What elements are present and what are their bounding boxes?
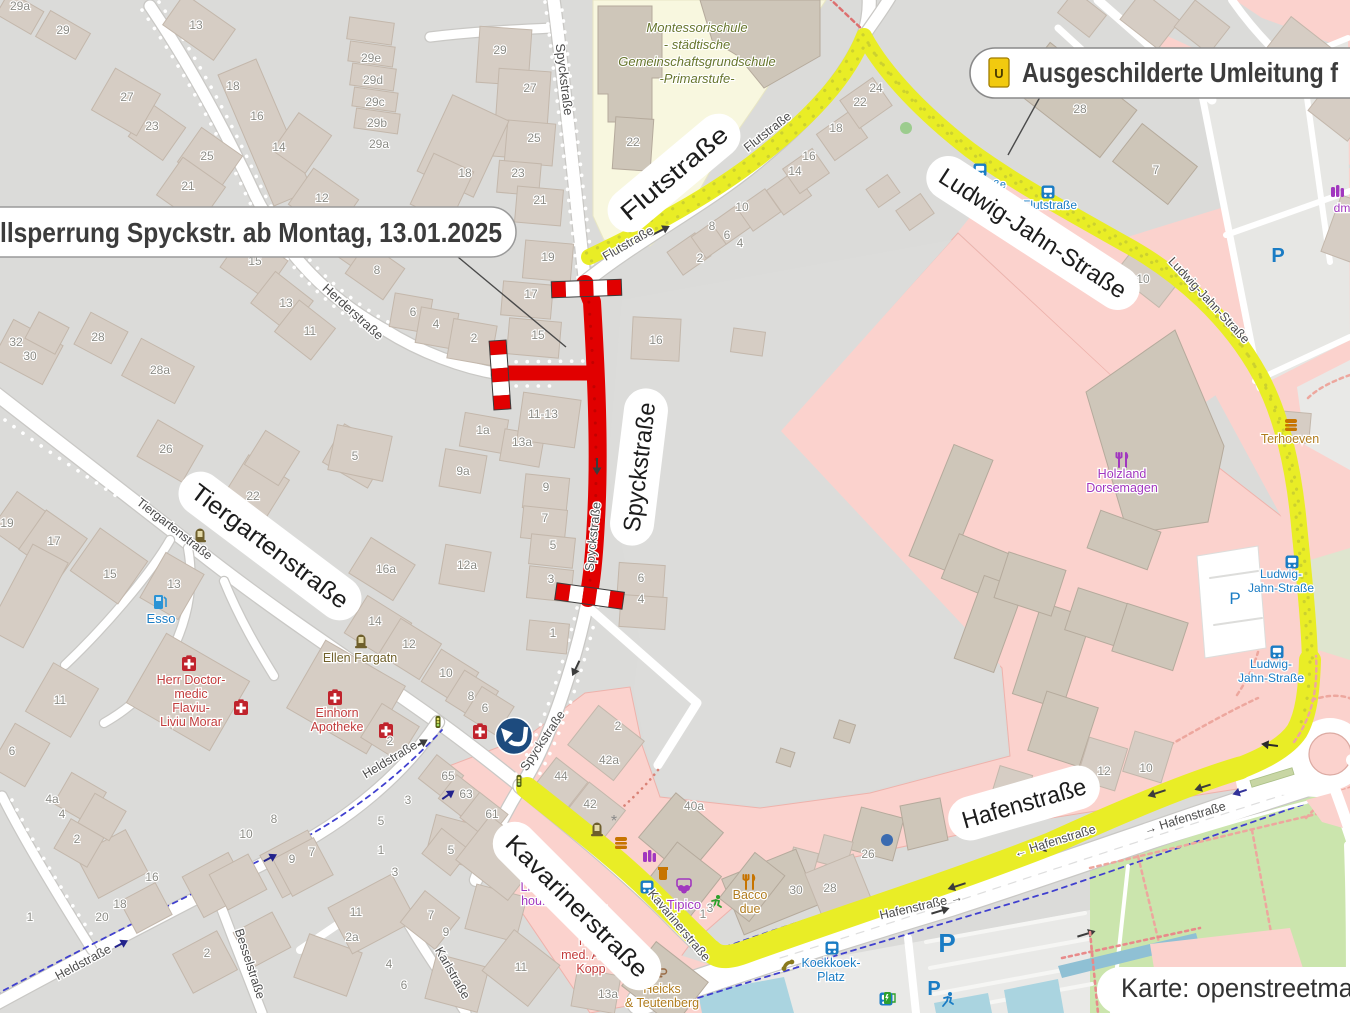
svg-text:21: 21 [533,193,547,207]
svg-text:6: 6 [724,228,731,242]
svg-text:*: * [611,813,617,830]
svg-text:P: P [938,928,955,958]
svg-text:17: 17 [47,534,61,548]
svg-text:13: 13 [167,577,181,591]
svg-text:2: 2 [387,734,394,748]
svg-text:8: 8 [271,812,278,826]
svg-text:28: 28 [823,881,837,895]
svg-text:Koekkoek-: Koekkoek- [801,956,860,970]
svg-text:29: 29 [56,23,70,37]
svg-text:18: 18 [829,121,843,135]
svg-text:6: 6 [638,571,645,585]
svg-text:17: 17 [524,287,538,301]
svg-text:8: 8 [709,219,716,233]
svg-text:9: 9 [543,480,550,494]
svg-text:16a: 16a [376,562,396,576]
svg-text:U: U [994,66,1003,81]
svg-text:Bacco: Bacco [733,888,768,902]
svg-text:15: 15 [103,567,117,581]
svg-text:4: 4 [737,236,744,250]
svg-text:7: 7 [1153,163,1160,177]
svg-text:- städtische: - städtische [664,37,730,52]
svg-text:19: 19 [541,250,555,264]
svg-text:Ludwig-: Ludwig- [1250,657,1292,671]
svg-text:dm: dm [1334,201,1350,215]
svg-text:11: 11 [515,960,528,974]
svg-text:9a: 9a [456,464,470,478]
svg-text:6: 6 [401,978,408,992]
svg-text:12: 12 [315,191,329,205]
svg-text:23: 23 [511,166,525,180]
svg-text:29: 29 [493,43,507,57]
svg-text:3: 3 [405,793,412,807]
svg-text:Gemeinschaftsgrundschule: Gemeinschaftsgrundschule [618,54,776,69]
svg-text:Tipico: Tipico [667,897,701,912]
svg-text:llsperrung Spyckstr. ab Montag: llsperrung Spyckstr. ab Montag, 13.01.20… [0,217,502,248]
svg-text:14: 14 [788,164,802,178]
svg-text:44: 44 [554,769,568,783]
svg-text:11: 11 [350,905,363,919]
svg-text:Ausgeschilderte Umleitung f: Ausgeschilderte Umleitung f [1022,57,1339,88]
svg-text:12a: 12a [457,558,477,572]
svg-text:1a: 1a [476,423,490,437]
svg-text:1: 1 [378,843,385,857]
svg-text:65: 65 [441,769,455,783]
svg-text:Montessorischule: Montessorischule [646,20,747,35]
svg-text:4: 4 [386,957,393,971]
svg-text:5: 5 [378,814,385,828]
svg-text:1: 1 [550,626,557,640]
svg-text:7: 7 [542,511,549,525]
svg-text:10: 10 [439,666,453,680]
svg-text:6: 6 [410,305,417,319]
svg-text:4: 4 [433,317,440,331]
svg-text:7: 7 [309,845,316,859]
svg-text:2: 2 [615,719,622,733]
svg-text:1: 1 [700,907,707,921]
svg-text:3: 3 [707,901,714,915]
svg-text:18: 18 [458,166,472,180]
svg-text:6: 6 [9,744,16,758]
svg-text:due: due [740,902,761,916]
svg-text:2a: 2a [345,930,359,944]
svg-text:Dorsemagen: Dorsemagen [1086,481,1158,495]
svg-text:3: 3 [548,572,555,586]
svg-text:-Primarstufe-: -Primarstufe- [659,71,735,86]
svg-text:Flaviu-: Flaviu- [172,701,210,715]
svg-text:Jahn-Straße: Jahn-Straße [1248,581,1314,595]
svg-text:24: 24 [869,81,883,95]
svg-text:28a: 28a [150,363,170,377]
svg-text:26: 26 [861,847,875,861]
svg-text:16: 16 [802,149,816,163]
svg-text:& Teutenberg: & Teutenberg [625,996,699,1010]
svg-text:Jahn-Straße: Jahn-Straße [1238,671,1304,685]
svg-text:63: 63 [459,787,473,801]
svg-text:2: 2 [697,251,704,265]
svg-text:2: 2 [74,832,81,846]
svg-text:42a: 42a [599,753,619,767]
svg-text:Platz: Platz [817,970,845,984]
svg-text:26: 26 [159,442,173,456]
svg-text:10: 10 [735,200,749,214]
svg-text:Esso: Esso [147,611,176,626]
svg-text:61: 61 [485,807,499,821]
svg-text:14: 14 [272,140,286,154]
svg-text:30: 30 [789,883,803,897]
svg-text:29a: 29a [10,0,30,13]
svg-text:16: 16 [649,333,663,347]
svg-text:13: 13 [189,18,203,32]
svg-text:Liviu Morar: Liviu Morar [160,715,222,729]
svg-text:27: 27 [523,81,537,95]
svg-text:16: 16 [145,870,159,884]
svg-text:Holzland: Holzland [1098,467,1147,481]
svg-text:19: 19 [0,516,14,530]
svg-text:12: 12 [402,637,416,651]
svg-text:28: 28 [1073,102,1087,116]
svg-text:25: 25 [527,131,541,145]
svg-text:10: 10 [239,827,253,841]
svg-text:11: 11 [304,324,317,338]
svg-text:Ellen Fargatn: Ellen Fargatn [323,651,397,665]
svg-text:42: 42 [583,797,597,811]
svg-text:medic: medic [174,687,207,701]
svg-text:13a: 13a [512,435,532,449]
svg-text:P: P [1229,589,1240,608]
svg-text:Einhorn: Einhorn [315,706,358,720]
svg-text:29c: 29c [365,95,384,109]
svg-text:3: 3 [392,865,399,879]
svg-text:29e: 29e [361,51,381,65]
svg-text:22: 22 [626,135,640,149]
svg-text:Karte: openstreetma: Karte: openstreetma [1121,973,1350,1003]
svg-text:11-13: 11-13 [528,407,558,421]
svg-text:Ludwig-: Ludwig- [1260,567,1302,581]
svg-text:40a: 40a [684,799,704,813]
svg-text:P: P [927,978,940,1000]
svg-text:32: 32 [9,335,23,349]
svg-text:29a: 29a [369,137,389,151]
svg-text:23: 23 [145,119,159,133]
svg-text:21: 21 [181,179,195,193]
svg-text:Kopp: Kopp [576,962,605,976]
svg-text:11: 11 [54,693,67,707]
svg-text:22: 22 [853,95,867,109]
svg-text:29d: 29d [363,73,383,87]
svg-text:15: 15 [531,328,545,342]
svg-text:18: 18 [226,79,240,93]
svg-text:12: 12 [1097,764,1111,778]
svg-text:8: 8 [468,689,475,703]
svg-text:5: 5 [352,449,359,463]
svg-text:20: 20 [95,910,109,924]
svg-text:9: 9 [289,852,296,866]
svg-text:22: 22 [246,489,260,503]
svg-text:9: 9 [443,925,450,939]
svg-text:Herr Doctor-: Herr Doctor- [157,673,226,687]
svg-text:6: 6 [482,701,489,715]
svg-text:29b: 29b [367,116,387,130]
svg-text:10: 10 [1139,761,1153,775]
svg-text:4a: 4a [45,792,59,806]
svg-text:8: 8 [374,263,381,277]
svg-text:27: 27 [120,90,134,104]
svg-text:5: 5 [448,843,455,857]
svg-text:7: 7 [428,908,435,922]
svg-text:13a: 13a [598,987,618,1001]
svg-text:18: 18 [113,897,127,911]
svg-text:14: 14 [368,614,382,628]
svg-text:P: P [1271,245,1284,267]
svg-text:2: 2 [471,331,478,345]
svg-text:4: 4 [59,807,66,821]
svg-text:28: 28 [91,330,105,344]
svg-text:25: 25 [200,149,214,163]
svg-text:1: 1 [27,910,34,924]
svg-text:13: 13 [279,296,293,310]
svg-text:Terhoeven: Terhoeven [1261,432,1319,446]
svg-text:2: 2 [204,946,211,960]
svg-text:4: 4 [638,592,645,606]
svg-text:16: 16 [250,109,264,123]
svg-text:Apotheke: Apotheke [311,720,364,734]
svg-text:5: 5 [550,538,557,552]
svg-text:30: 30 [23,349,37,363]
